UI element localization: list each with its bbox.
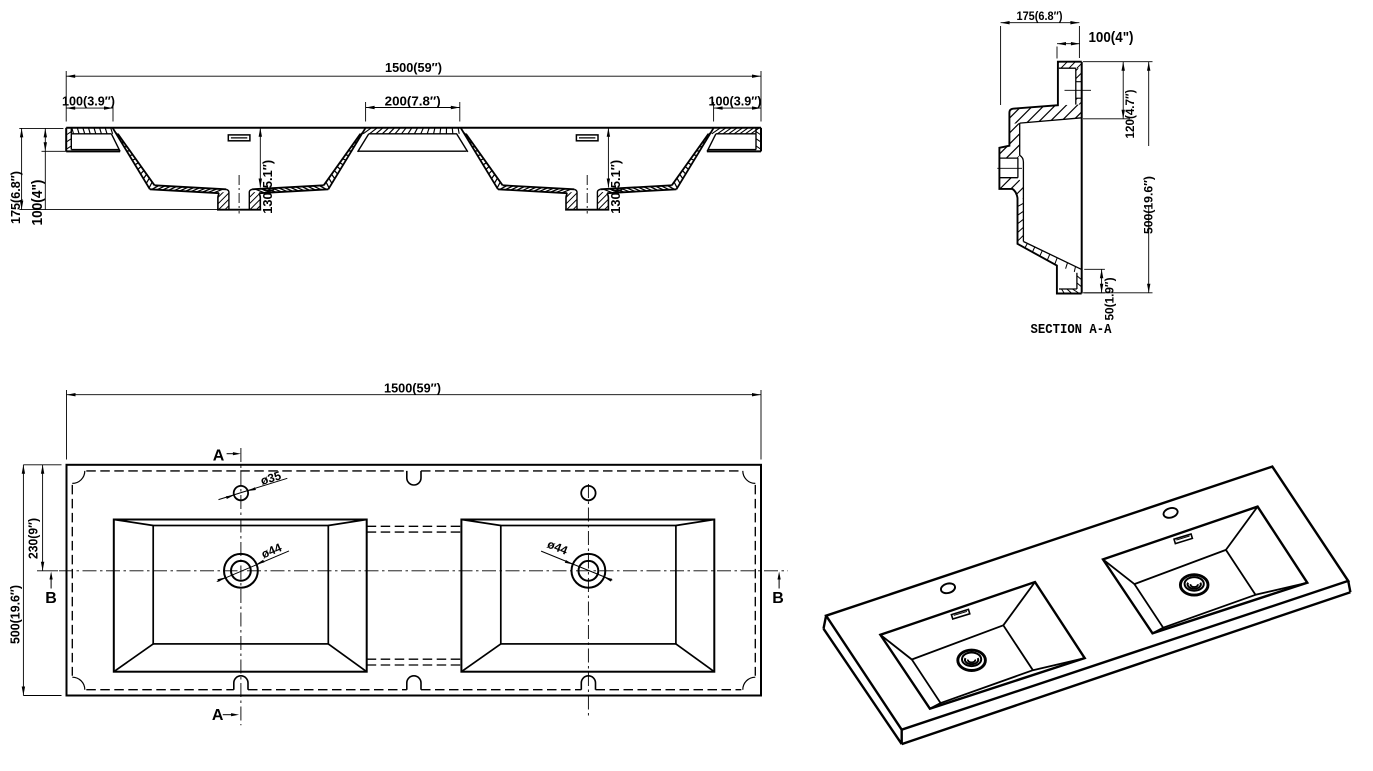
svg-text:A: A (213, 447, 225, 464)
svg-text:200(7.8″): 200(7.8″) (385, 95, 441, 109)
svg-text:100(3.9″): 100(3.9″) (709, 95, 762, 109)
svg-text:A: A (212, 707, 224, 724)
svg-text:130(5.1″): 130(5.1″) (261, 160, 275, 214)
svg-text:175(6.8″): 175(6.8″) (1017, 11, 1063, 23)
svg-text:120(4.7″): 120(4.7″) (1123, 90, 1137, 139)
svg-text:130(5.1″): 130(5.1″) (609, 160, 623, 214)
svg-text:500(19.6″): 500(19.6″) (9, 585, 23, 644)
svg-text:175(6.8″): 175(6.8″) (9, 171, 23, 224)
svg-text:100(4"): 100(4") (29, 180, 46, 226)
svg-text:230(9″): 230(9″) (26, 518, 40, 559)
svg-text:B: B (772, 590, 784, 607)
svg-text:50(1.9″): 50(1.9″) (1103, 278, 1117, 321)
svg-text:B: B (45, 590, 57, 607)
svg-text:1500(59″): 1500(59″) (385, 61, 442, 75)
svg-text:100(3.9″): 100(3.9″) (62, 95, 115, 109)
svg-text:1500(59″): 1500(59″) (384, 382, 441, 396)
svg-text:SECTION A-A: SECTION A-A (1031, 322, 1113, 338)
svg-text:100(4"): 100(4") (1089, 29, 1134, 46)
svg-text:500(19.6″): 500(19.6″) (1142, 176, 1156, 234)
